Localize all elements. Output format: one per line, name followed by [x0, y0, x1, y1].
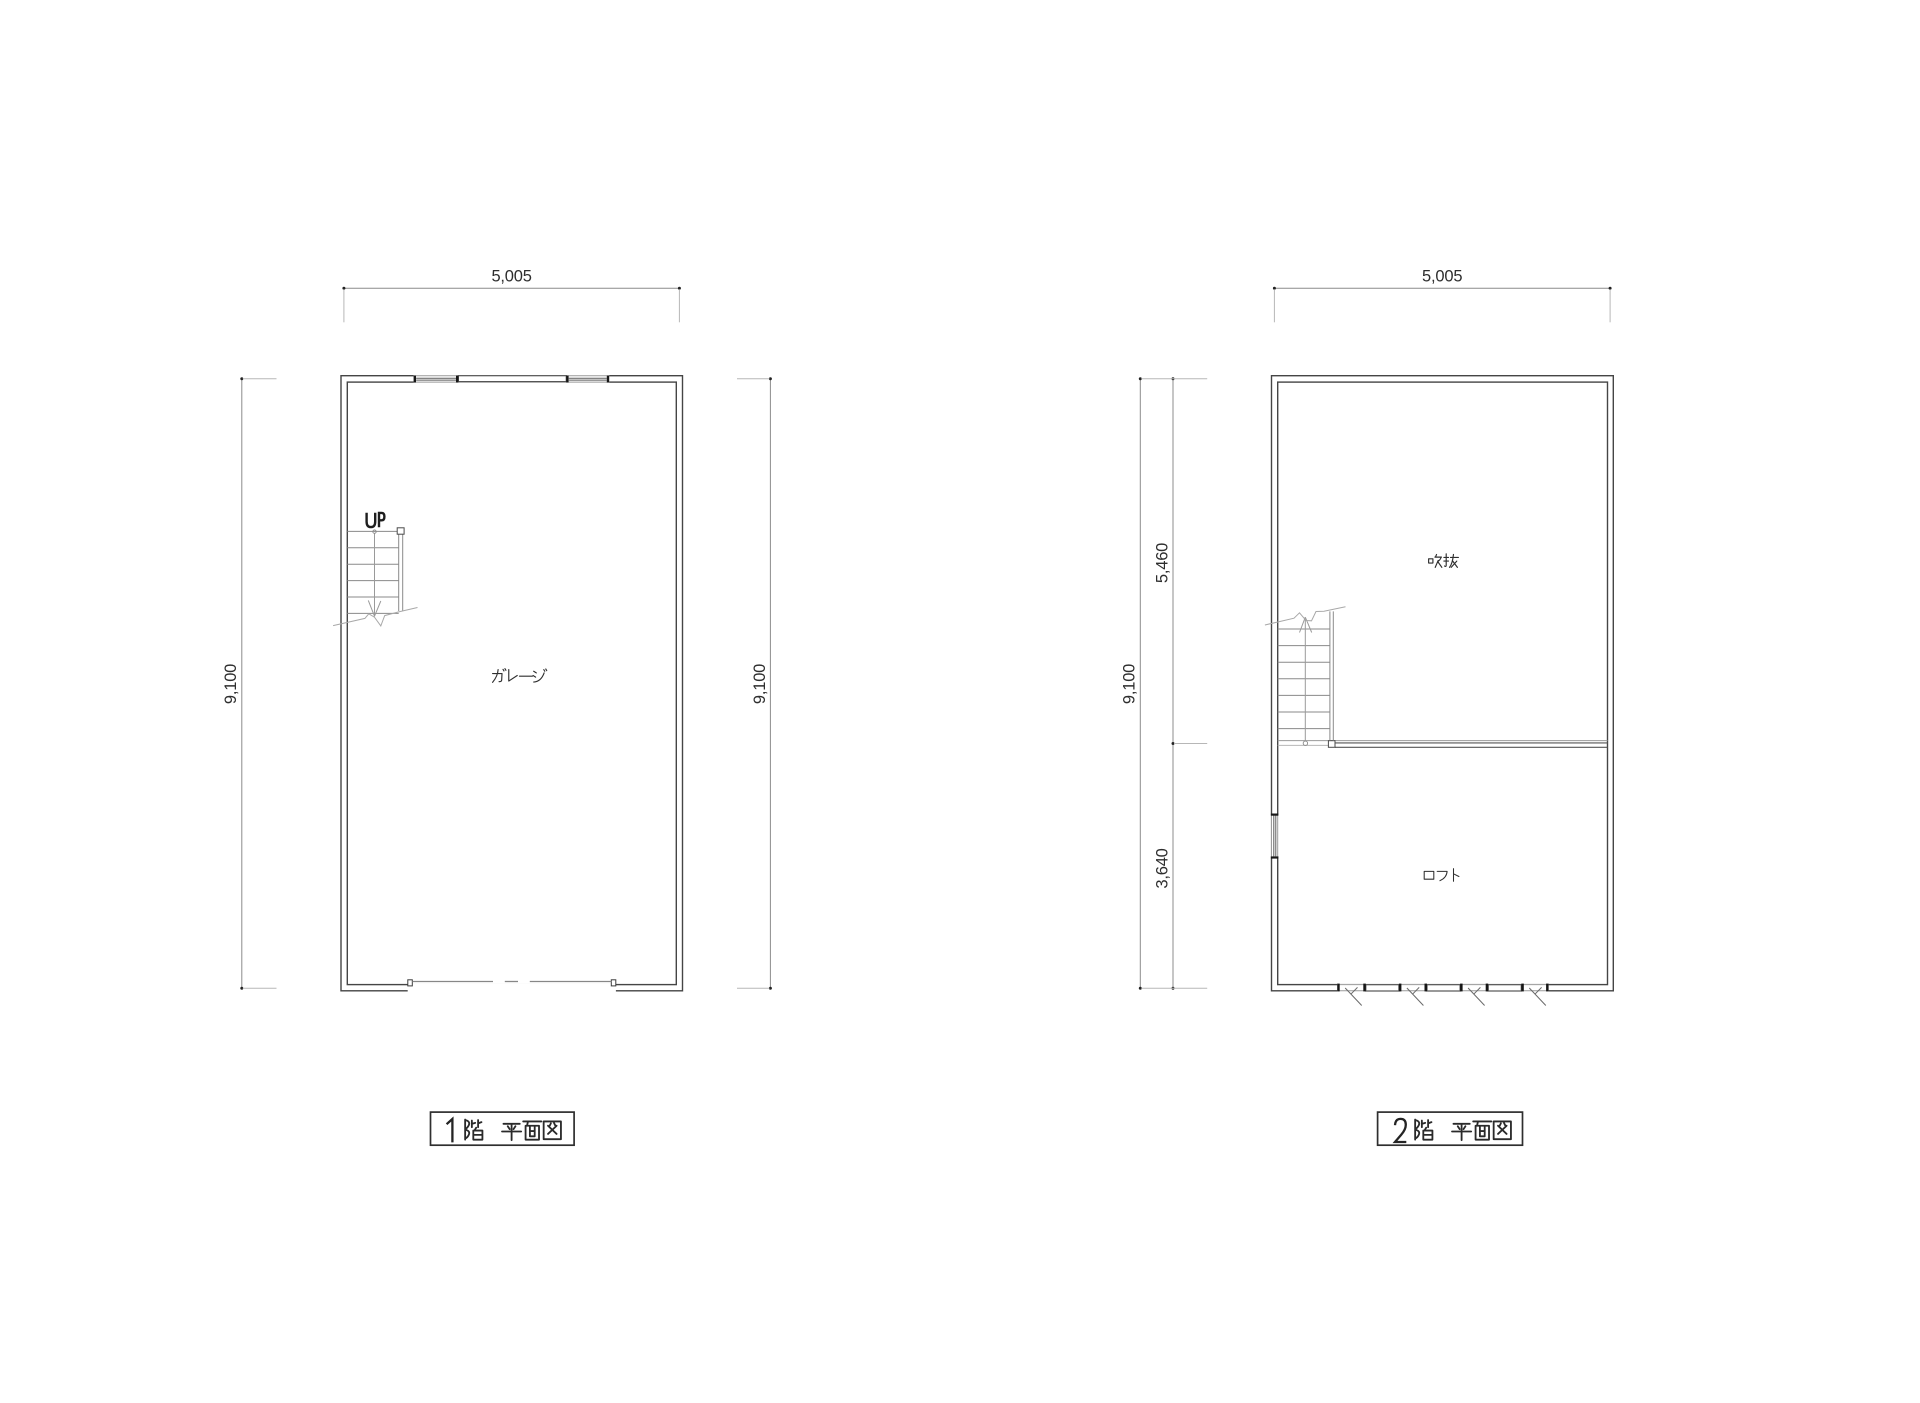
svg-text:9,100: 9,100: [1121, 664, 1139, 704]
svg-text:9,100: 9,100: [222, 664, 240, 704]
svg-text:3,640: 3,640: [1153, 848, 1171, 888]
svg-text:5,005: 5,005: [1422, 268, 1462, 286]
svg-text:5,005: 5,005: [491, 268, 531, 286]
svg-text:9,100: 9,100: [751, 664, 769, 704]
svg-text:5,460: 5,460: [1153, 543, 1171, 583]
